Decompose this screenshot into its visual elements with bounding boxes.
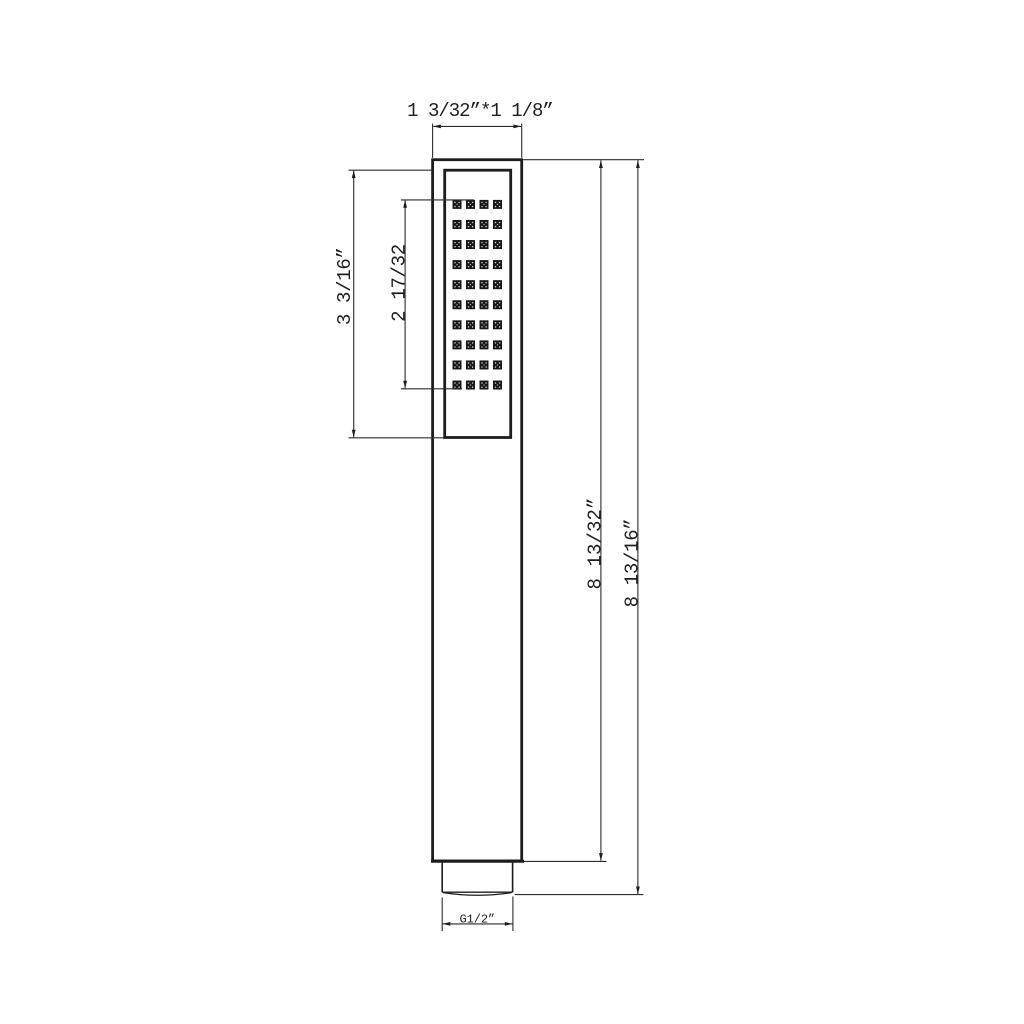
svg-text:8 13/16”: 8 13/16”	[621, 519, 643, 608]
svg-text:2 17/32: 2 17/32	[388, 244, 410, 322]
svg-text:1 3/32”*1 1/8”: 1 3/32”*1 1/8”	[407, 100, 553, 122]
svg-text:G1/2”: G1/2”	[460, 913, 496, 927]
svg-text:3 3/16”: 3 3/16”	[334, 247, 356, 325]
svg-text:8 13/32”: 8 13/32”	[584, 497, 606, 589]
